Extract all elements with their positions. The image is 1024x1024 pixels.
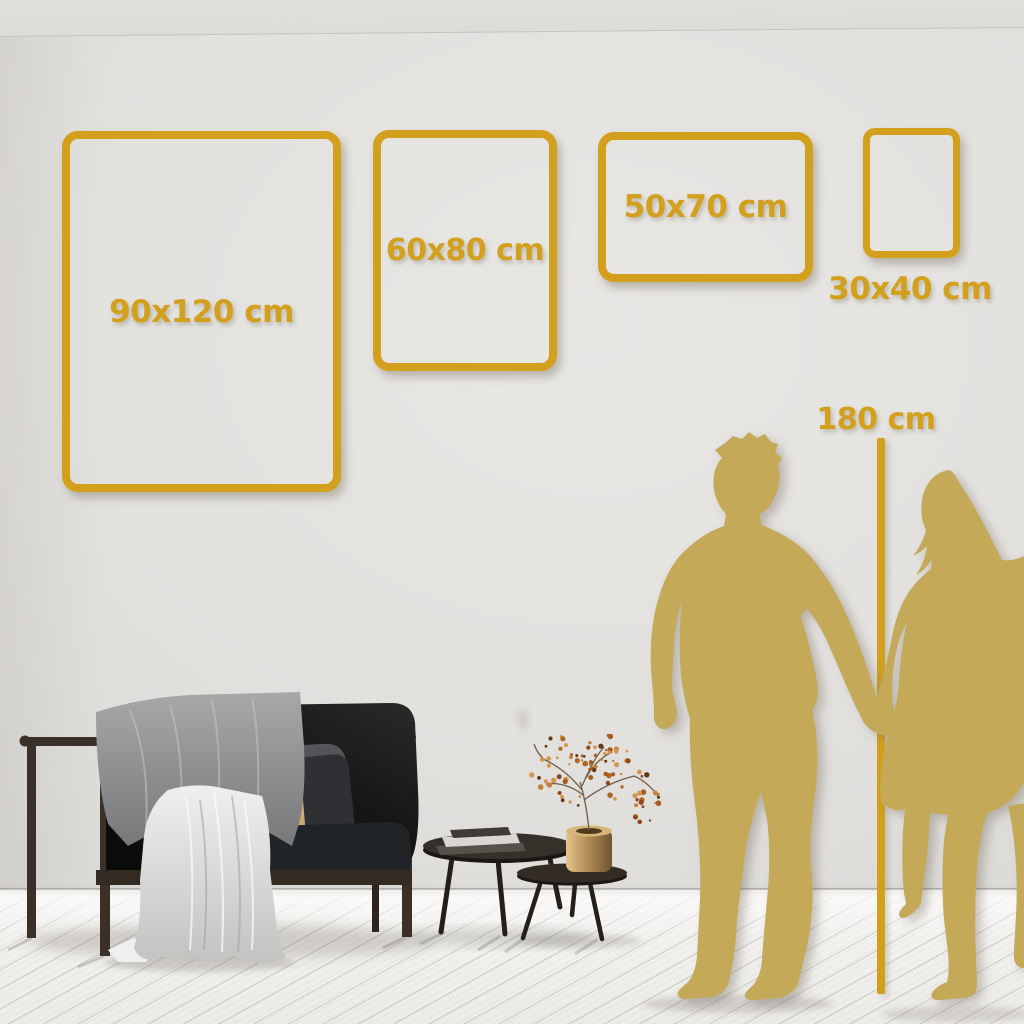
man-silhouette [651,432,891,1000]
woman-right-leg-edge [1008,800,1024,968]
poster-size-guide-scene: 90x120 cm 60x80 cm 50x70 cm 30x40 cm 180… [0,0,1024,1024]
woman-silhouette [871,470,1024,1000]
couple-silhouette [0,0,1024,1024]
